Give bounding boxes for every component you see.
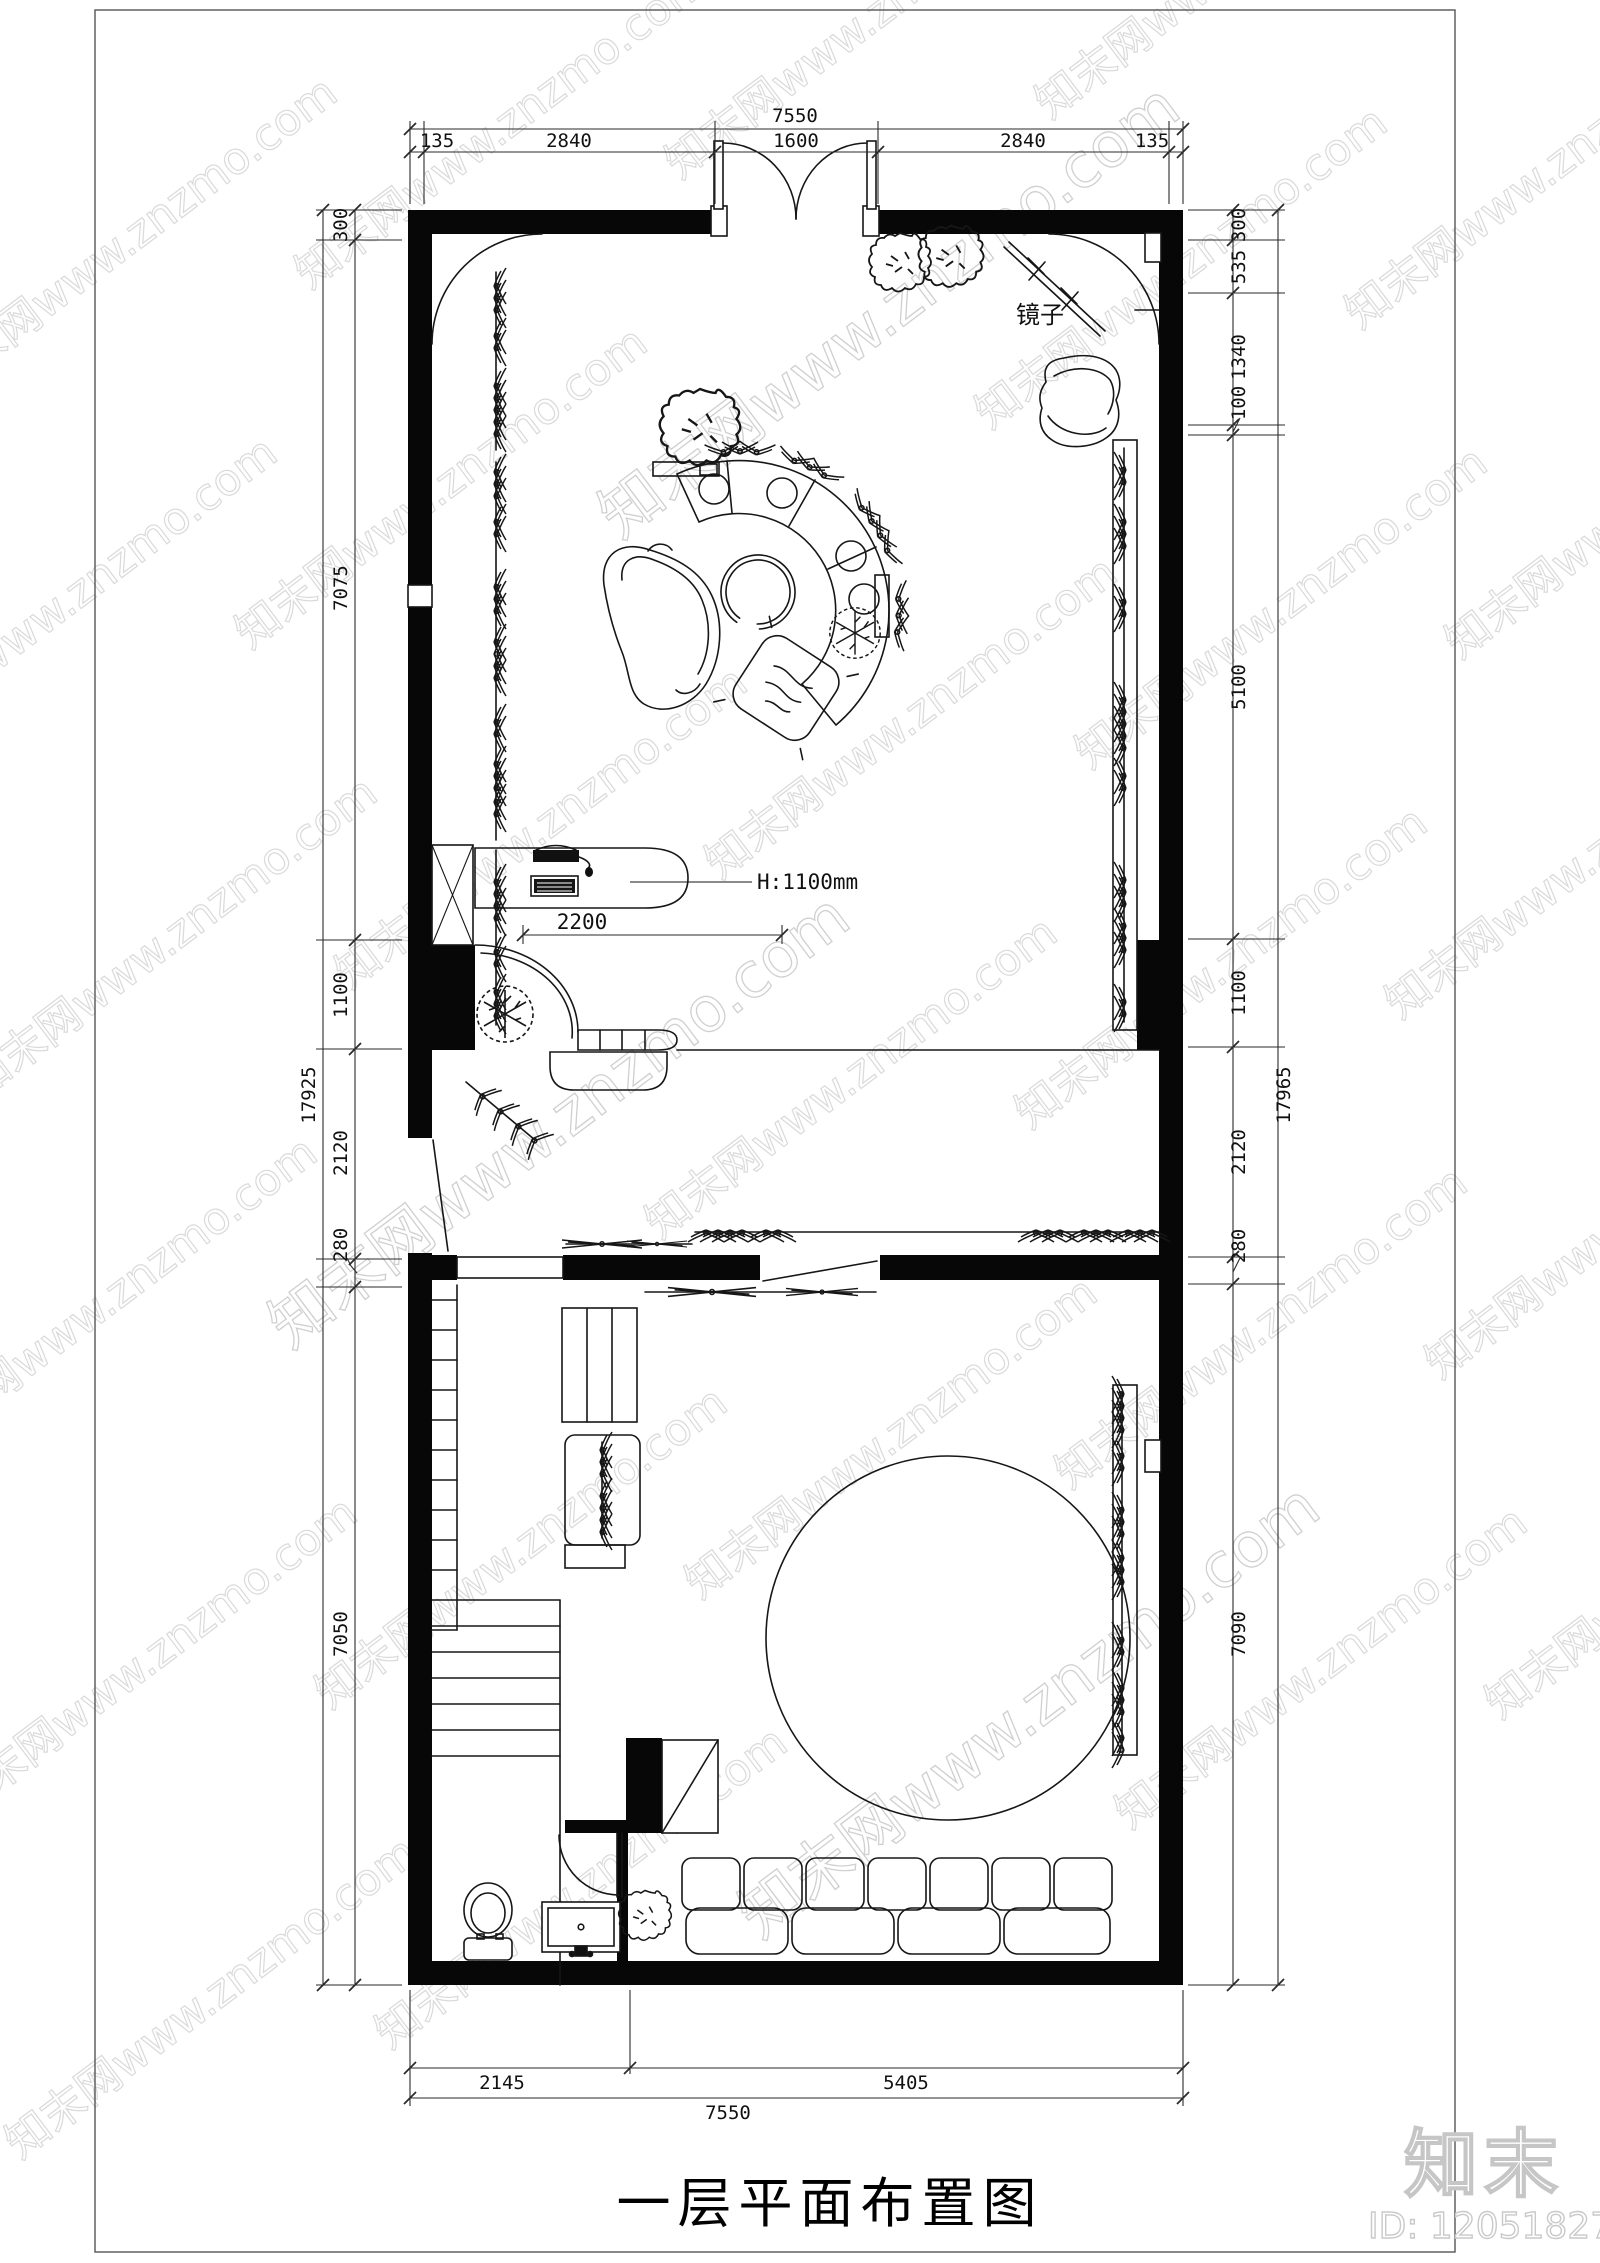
fitting-curve xyxy=(475,945,578,1032)
floorplan-canvas: 知末网www.znzmo.com 知末网www.znzmo.com 知末网www… xyxy=(0,0,1600,2263)
svg-text:2145: 2145 xyxy=(479,2072,525,2094)
brand: 知末 ID: 1205182749 xyxy=(1368,2122,1600,2247)
hangers xyxy=(468,268,1170,1768)
svg-text:5100: 5100 xyxy=(1228,664,1250,710)
svg-text:280: 280 xyxy=(1228,1229,1250,1263)
svg-text:535: 535 xyxy=(1228,250,1250,284)
svg-text:17925: 17925 xyxy=(298,1066,320,1123)
svg-text:7075: 7075 xyxy=(330,565,352,611)
svg-text:知末网www.znzmo.com: 知末网www.znzmo.com xyxy=(286,0,717,299)
cabinet xyxy=(562,1308,637,1422)
svg-text:1340: 1340 xyxy=(1228,334,1250,380)
svg-text:7050: 7050 xyxy=(330,1611,352,1657)
svg-text:2120: 2120 xyxy=(1228,1129,1250,1175)
svg-text:知末网www.znzmo.com: 知末网www.znzmo.com xyxy=(326,657,757,999)
brand-logo: 知末 xyxy=(1404,2122,1564,2208)
svg-text:知末网www.znzmo.com: 知末网www.znzmo.com xyxy=(0,1487,367,1829)
door-leaf-right xyxy=(867,141,876,209)
staircase xyxy=(432,1285,560,1985)
svg-text:知末网www.znzmo.com: 知末网www.znzmo.com xyxy=(0,427,287,769)
svg-text:知末网www.znzmo.com: 知末网www.znzmo.com xyxy=(1006,797,1437,1139)
svg-text:2840: 2840 xyxy=(546,130,592,152)
toilet xyxy=(464,1883,512,1960)
svg-text:1100: 1100 xyxy=(330,972,352,1018)
svg-text:17965: 17965 xyxy=(1273,1066,1295,1123)
svg-text:7090: 7090 xyxy=(1228,1611,1250,1657)
svg-text:知末网www.znzmo.com: 知末网www.znzmo.com xyxy=(636,907,1067,1249)
counter-height-label: H:1100mm xyxy=(757,870,858,894)
cash-register xyxy=(533,850,579,862)
watermark-layer: 知末网www.znzmo.com 知末网www.znzmo.com 知末网www… xyxy=(0,0,1600,2169)
svg-text:2120: 2120 xyxy=(330,1130,352,1176)
svg-text:2840: 2840 xyxy=(1000,130,1046,152)
svg-text:知末网www.znzmo.com: 知末网www.znzmo.com xyxy=(1066,437,1497,779)
ring-rack xyxy=(706,540,809,643)
cased-opening xyxy=(457,1257,563,1278)
counter-width-label: 2200 xyxy=(557,910,608,934)
svg-text:135: 135 xyxy=(420,130,454,152)
dim-left: 300 7075 1100 2120 280 7050 17925 xyxy=(298,204,402,1991)
watermark-text: 知末网www.znzmo.com xyxy=(0,67,347,409)
svg-text:知末网www.znzmo.com: 知末网www.znzmo.com xyxy=(676,1267,1107,1609)
right-wall-niche-bottom xyxy=(1145,1440,1161,1472)
svg-text:1100: 1100 xyxy=(1228,970,1250,1016)
lower-room-door-leaf xyxy=(763,1261,877,1281)
svg-text:280: 280 xyxy=(330,1228,352,1262)
left-wall-niche xyxy=(408,585,432,607)
svg-text:7550: 7550 xyxy=(705,2102,751,2124)
right-wall-niche-top xyxy=(1145,233,1161,262)
svg-text:300: 300 xyxy=(1228,208,1250,242)
entry-door xyxy=(711,141,879,236)
drawing-sheet: 知末网www.znzmo.com 知末网www.znzmo.com 知末网www… xyxy=(0,0,1600,2263)
brand-id: ID: 1205182749 xyxy=(1368,2206,1600,2247)
sink xyxy=(542,1902,620,1957)
modular-sofa xyxy=(682,1858,1112,1954)
svg-text:知末网www.znzmo.com: 知末网www.znzmo.com xyxy=(0,767,387,1109)
svg-text:知末网www.znzmo.com: 知末网www.znzmo.com xyxy=(1026,0,1457,129)
svg-text:135: 135 xyxy=(1135,130,1169,152)
svg-text:知末网www.znzmo.com: 知末网www.znzmo.com xyxy=(696,547,1127,889)
dim-bottom: 2145 5405 7550 xyxy=(404,1990,1189,2124)
drawing-title: 一层平面布置图 xyxy=(617,2172,1044,2235)
svg-text:1600: 1600 xyxy=(773,130,819,152)
svg-text:100: 100 xyxy=(1228,386,1250,420)
svg-text:知末网www.znzmo.com: 知末网www.znzmo.com xyxy=(1336,0,1600,339)
mirror-label: 镜子 xyxy=(1016,301,1064,329)
svg-text:知末网www.znzmo.com: 知末网www.znzmo.com xyxy=(306,1377,737,1719)
svg-text:5405: 5405 xyxy=(883,2072,929,2094)
mouse xyxy=(585,867,593,877)
svg-text:知末网www.znzmo.com: 知末网www.znzmo.com xyxy=(1046,1157,1477,1499)
plant-fitting xyxy=(477,986,533,1042)
svg-text:300: 300 xyxy=(330,208,352,242)
svg-text:知末网www.znzmo.com: 知末网www.znzmo.com xyxy=(0,1827,427,2169)
dim-label: 7550 xyxy=(772,105,818,127)
plant-counter-end xyxy=(830,608,880,658)
